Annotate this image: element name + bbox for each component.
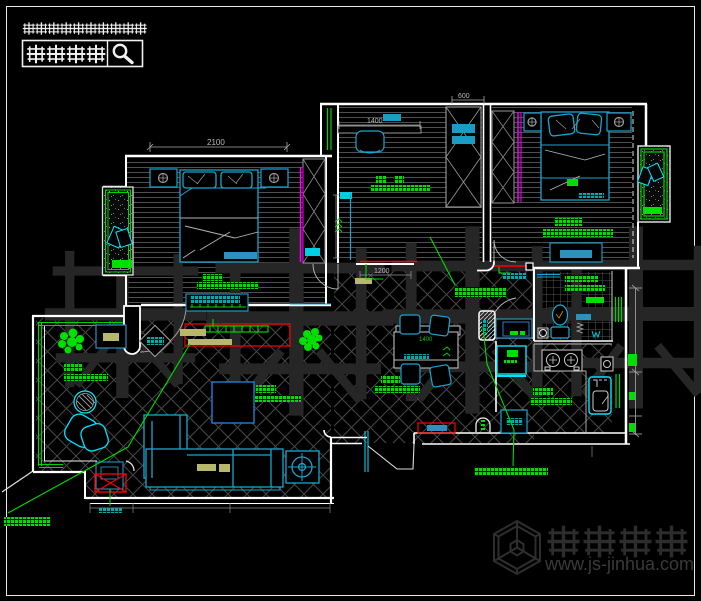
svg-text:600: 600	[458, 93, 470, 100]
svg-text:1400: 1400	[419, 337, 433, 343]
svg-text:1400: 1400	[367, 118, 383, 125]
svg-text:1200: 1200	[374, 268, 390, 275]
svg-text:2100: 2100	[207, 138, 225, 147]
svg-text:www.js-jinhua.com: www.js-jinhua.com	[544, 554, 694, 574]
